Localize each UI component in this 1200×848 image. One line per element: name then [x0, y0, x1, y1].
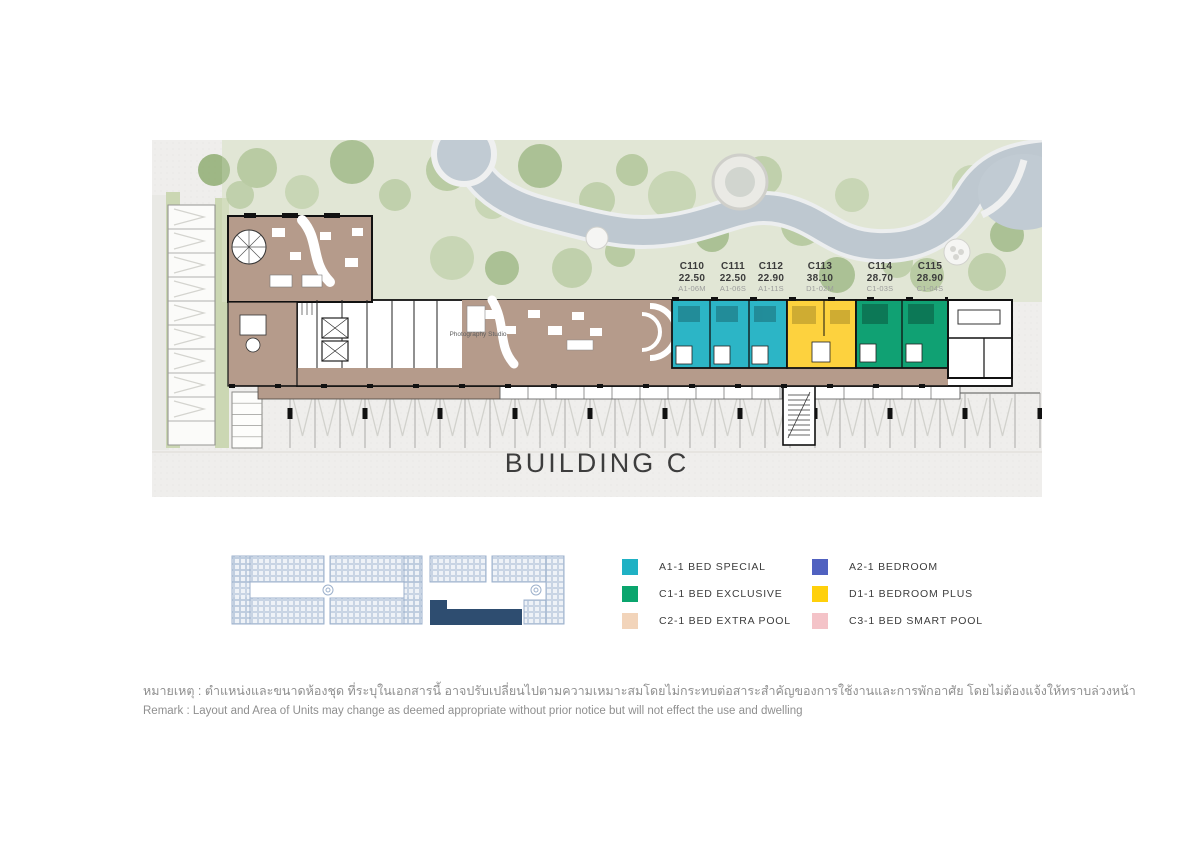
unit-number: C114	[867, 261, 894, 273]
remark: หมายเหตุ : ตำแหน่งและขนาดห้องชุด ที่ระบุ…	[143, 681, 1136, 721]
unit-type-code: D1-02M	[806, 284, 834, 294]
unit-label: C115 28.90 C1-04S	[917, 261, 944, 294]
unit-label: C114 28.70 C1-03S	[867, 261, 894, 294]
key-plan	[228, 552, 568, 638]
photography-studio-label: Photography Studio	[449, 331, 506, 338]
legend-item: D1-1 BEDROOM PLUS	[812, 586, 1027, 602]
legend-label: C1-1 BED EXCLUSIVE	[659, 588, 783, 600]
remark-english: Remark : Layout and Area of Units may ch…	[143, 701, 1136, 721]
legend-label: A1-1 BED SPECIAL	[659, 561, 766, 573]
unit-type-code: C1-04S	[917, 284, 944, 294]
legend-item: C2-1 BED EXTRA POOL	[622, 613, 812, 629]
unit-area: 28.70	[867, 273, 894, 285]
unit-area: 22.50	[720, 273, 747, 285]
unit-area: 22.50	[678, 273, 705, 285]
legend-item: A2-1 BEDROOM	[812, 559, 1027, 575]
site-plan: C110 22.50 A1-06M C111 22.50 A1-06S C112…	[152, 140, 1042, 497]
legend-label: D1-1 BEDROOM PLUS	[849, 588, 973, 600]
unit-number: C111	[720, 261, 747, 273]
legend-label: A2-1 BEDROOM	[849, 561, 938, 573]
legend-item: C1-1 BED EXCLUSIVE	[622, 586, 812, 602]
unit-label: C110 22.50 A1-06M	[678, 261, 705, 294]
legend-item: A1-1 BED SPECIAL	[622, 559, 812, 575]
unit-number: C113	[806, 261, 834, 273]
unit-label: C112 22.90 A1-11S	[758, 261, 785, 294]
unit-label: C113 38.10 D1-02M	[806, 261, 834, 294]
unit-area: 22.90	[758, 273, 785, 285]
legend-color-swatch	[622, 613, 638, 629]
legend-item: C3-1 BED SMART POOL	[812, 613, 1027, 629]
unit-type-code: A1-06M	[678, 284, 705, 294]
legend-color-swatch	[812, 559, 828, 575]
legend-label: C3-1 BED SMART POOL	[849, 615, 983, 627]
unit-area: 28.90	[917, 273, 944, 285]
key-plan-highlight-building-c	[430, 600, 522, 625]
legend-color-swatch	[812, 613, 828, 629]
unit-type-code: C1-03S	[867, 284, 894, 294]
unit-labels: C110 22.50 A1-06M C111 22.50 A1-06S C112…	[152, 140, 1042, 497]
unit-type-legend: A1-1 BED SPECIAL C1-1 BED EXCLUSIVE C2-1…	[622, 553, 1027, 634]
legend-label: C2-1 BED EXTRA POOL	[659, 615, 791, 627]
unit-label: C111 22.50 A1-06S	[720, 261, 747, 294]
remark-thai: หมายเหตุ : ตำแหน่งและขนาดห้องชุด ที่ระบุ…	[143, 681, 1136, 701]
unit-number: C110	[678, 261, 705, 273]
unit-number: C115	[917, 261, 944, 273]
legend-color-swatch	[622, 559, 638, 575]
building-title: BUILDING C	[505, 448, 690, 479]
unit-area: 38.10	[806, 273, 834, 285]
unit-type-code: A1-11S	[758, 284, 785, 294]
unit-type-code: A1-06S	[720, 284, 747, 294]
unit-number: C112	[758, 261, 785, 273]
legend-color-swatch	[622, 586, 638, 602]
legend-color-swatch	[812, 586, 828, 602]
